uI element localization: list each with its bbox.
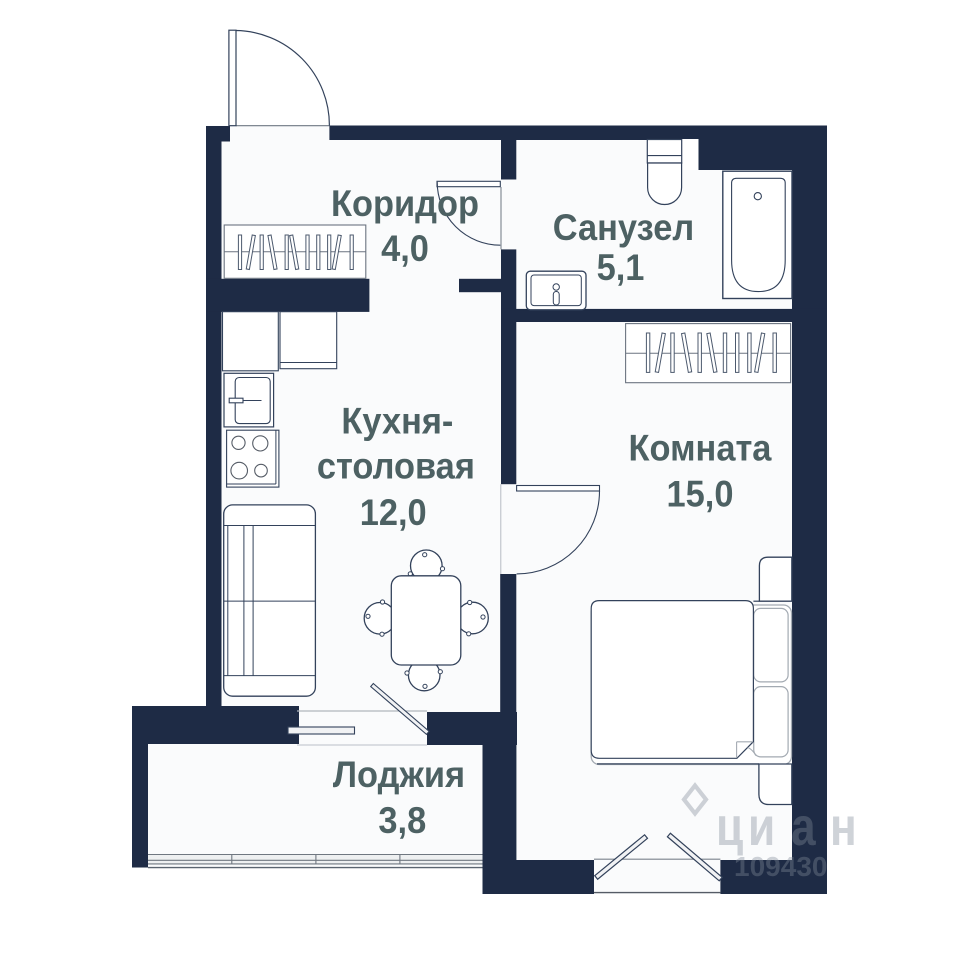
svg-text:4,0: 4,0 [381,228,429,269]
svg-text:а: а [791,797,816,857]
svg-text:109430: 109430 [734,851,828,882]
svg-text:12,0: 12,0 [360,492,427,533]
svg-text:столовая: столовая [317,445,475,486]
svg-text:15,0: 15,0 [667,473,734,514]
svg-text:и: и [748,797,775,857]
svg-text:3,8: 3,8 [378,800,426,841]
svg-text:Коридор: Коридор [331,183,479,224]
svg-text:Санузел: Санузел [553,207,694,248]
svg-text:Комната: Комната [629,427,773,468]
svg-text:ц: ц [716,797,743,857]
svg-text:Кухня-: Кухня- [341,400,453,441]
svg-text:н: н [830,797,857,857]
svg-text:Лоджия: Лоджия [333,754,465,795]
svg-text:5,1: 5,1 [597,247,645,288]
